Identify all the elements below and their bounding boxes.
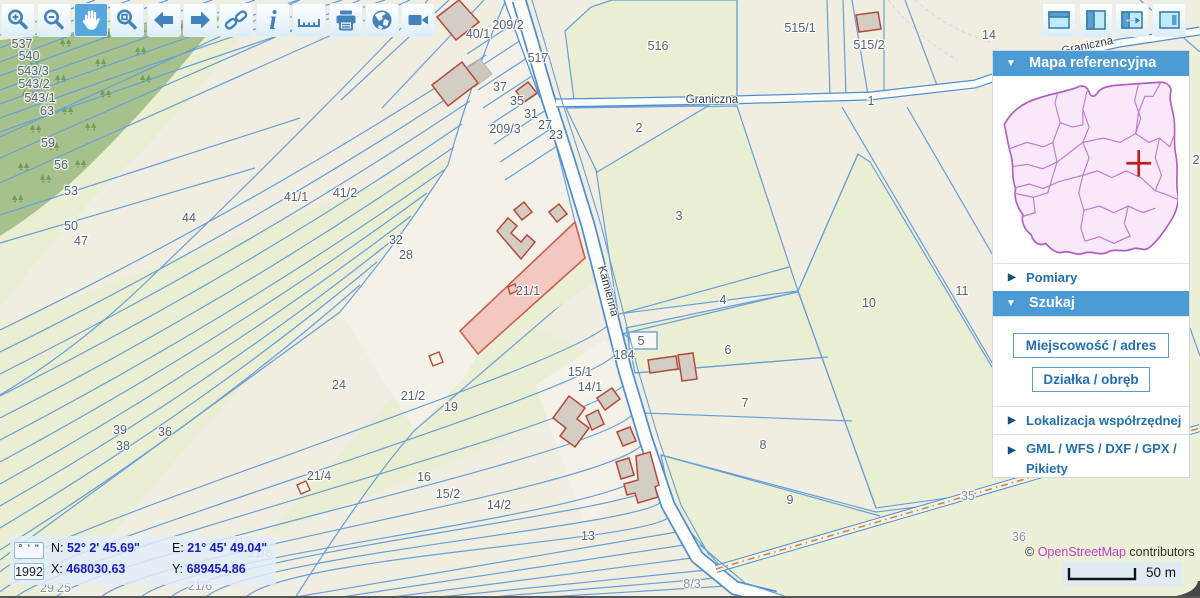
svg-text:38: 38: [116, 439, 130, 453]
svg-text:36: 36: [1012, 530, 1026, 544]
svg-text:44: 44: [182, 211, 196, 225]
svg-text:1: 1: [868, 94, 875, 108]
svg-text:47: 47: [74, 234, 88, 248]
svg-text:i: i: [269, 7, 277, 33]
svg-text:516: 516: [648, 39, 669, 53]
svg-text:14: 14: [982, 28, 996, 42]
svg-text:11: 11: [956, 284, 969, 298]
svg-text:15/2: 15/2: [436, 487, 460, 501]
svg-text:209/2: 209/2: [492, 18, 523, 32]
svg-text:37: 37: [493, 80, 507, 94]
svg-text:24: 24: [332, 378, 346, 392]
svg-text:9: 9: [787, 493, 794, 507]
svg-text:35: 35: [961, 489, 975, 503]
svg-text:540: 540: [19, 49, 40, 63]
svg-text:50: 50: [64, 219, 78, 233]
svg-text:39: 39: [113, 423, 127, 437]
svg-text:40/1: 40/1: [466, 27, 490, 41]
svg-text:5: 5: [638, 334, 645, 348]
svg-text:4: 4: [720, 293, 727, 307]
svg-text:Graniczna: Graniczna: [686, 94, 739, 106]
svg-text:36: 36: [158, 425, 172, 439]
svg-text:517: 517: [528, 51, 549, 65]
svg-text:10: 10: [862, 296, 876, 310]
svg-text:515/2: 515/2: [853, 38, 884, 52]
svg-text:28: 28: [399, 248, 413, 262]
svg-text:32: 32: [389, 233, 403, 247]
svg-text:31: 31: [524, 107, 538, 121]
svg-text:53: 53: [64, 184, 78, 198]
svg-text:515/1: 515/1: [784, 21, 815, 35]
svg-text:7: 7: [742, 396, 749, 410]
svg-text:13: 13: [581, 529, 595, 543]
svg-text:209/3: 209/3: [489, 122, 520, 136]
svg-text:14/1: 14/1: [578, 380, 602, 394]
svg-text:2: 2: [1193, 153, 1200, 167]
svg-text:14/2: 14/2: [487, 498, 511, 512]
svg-text:63: 63: [40, 104, 54, 118]
svg-text:35: 35: [510, 94, 524, 108]
svg-text:543/3: 543/3: [17, 64, 48, 78]
svg-text:8/3: 8/3: [683, 577, 700, 591]
svg-text:27: 27: [538, 118, 552, 132]
svg-text:41/2: 41/2: [333, 186, 357, 200]
svg-text:41/1: 41/1: [284, 190, 308, 204]
svg-text:543/2: 543/2: [18, 77, 49, 91]
svg-text:21/1: 21/1: [516, 284, 540, 298]
svg-text:59: 59: [41, 136, 55, 150]
svg-text:543/1: 543/1: [24, 91, 55, 105]
svg-text:56: 56: [54, 158, 68, 172]
svg-text:3: 3: [676, 209, 683, 223]
svg-text:19: 19: [444, 400, 458, 414]
svg-text:15/1: 15/1: [568, 365, 592, 379]
svg-text:8: 8: [760, 438, 767, 452]
svg-text:184: 184: [614, 348, 635, 362]
svg-text:16: 16: [417, 470, 431, 484]
svg-text:6: 6: [725, 343, 732, 357]
svg-text:21/2: 21/2: [401, 389, 425, 403]
svg-text:21/4: 21/4: [307, 469, 331, 483]
svg-text:2: 2: [636, 121, 643, 135]
